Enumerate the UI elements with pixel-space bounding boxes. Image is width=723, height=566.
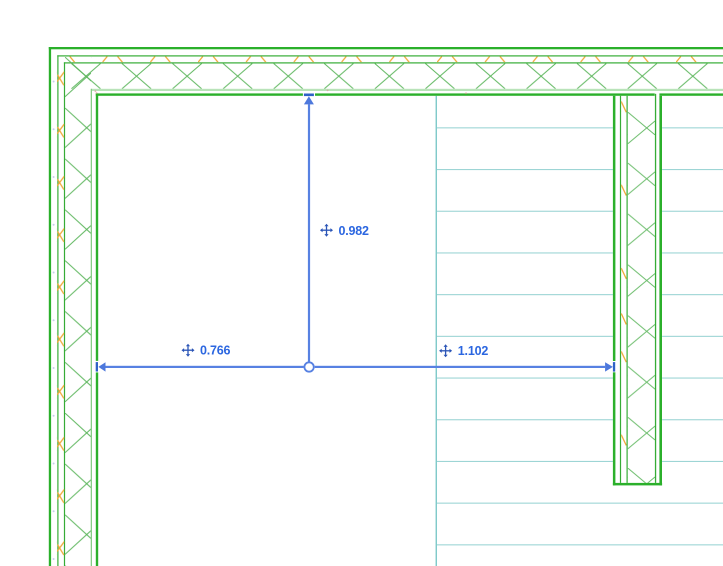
svg-text:0.766: 0.766	[200, 344, 231, 358]
svg-text:0.982: 0.982	[339, 224, 370, 238]
svg-text:1.102: 1.102	[458, 344, 489, 358]
